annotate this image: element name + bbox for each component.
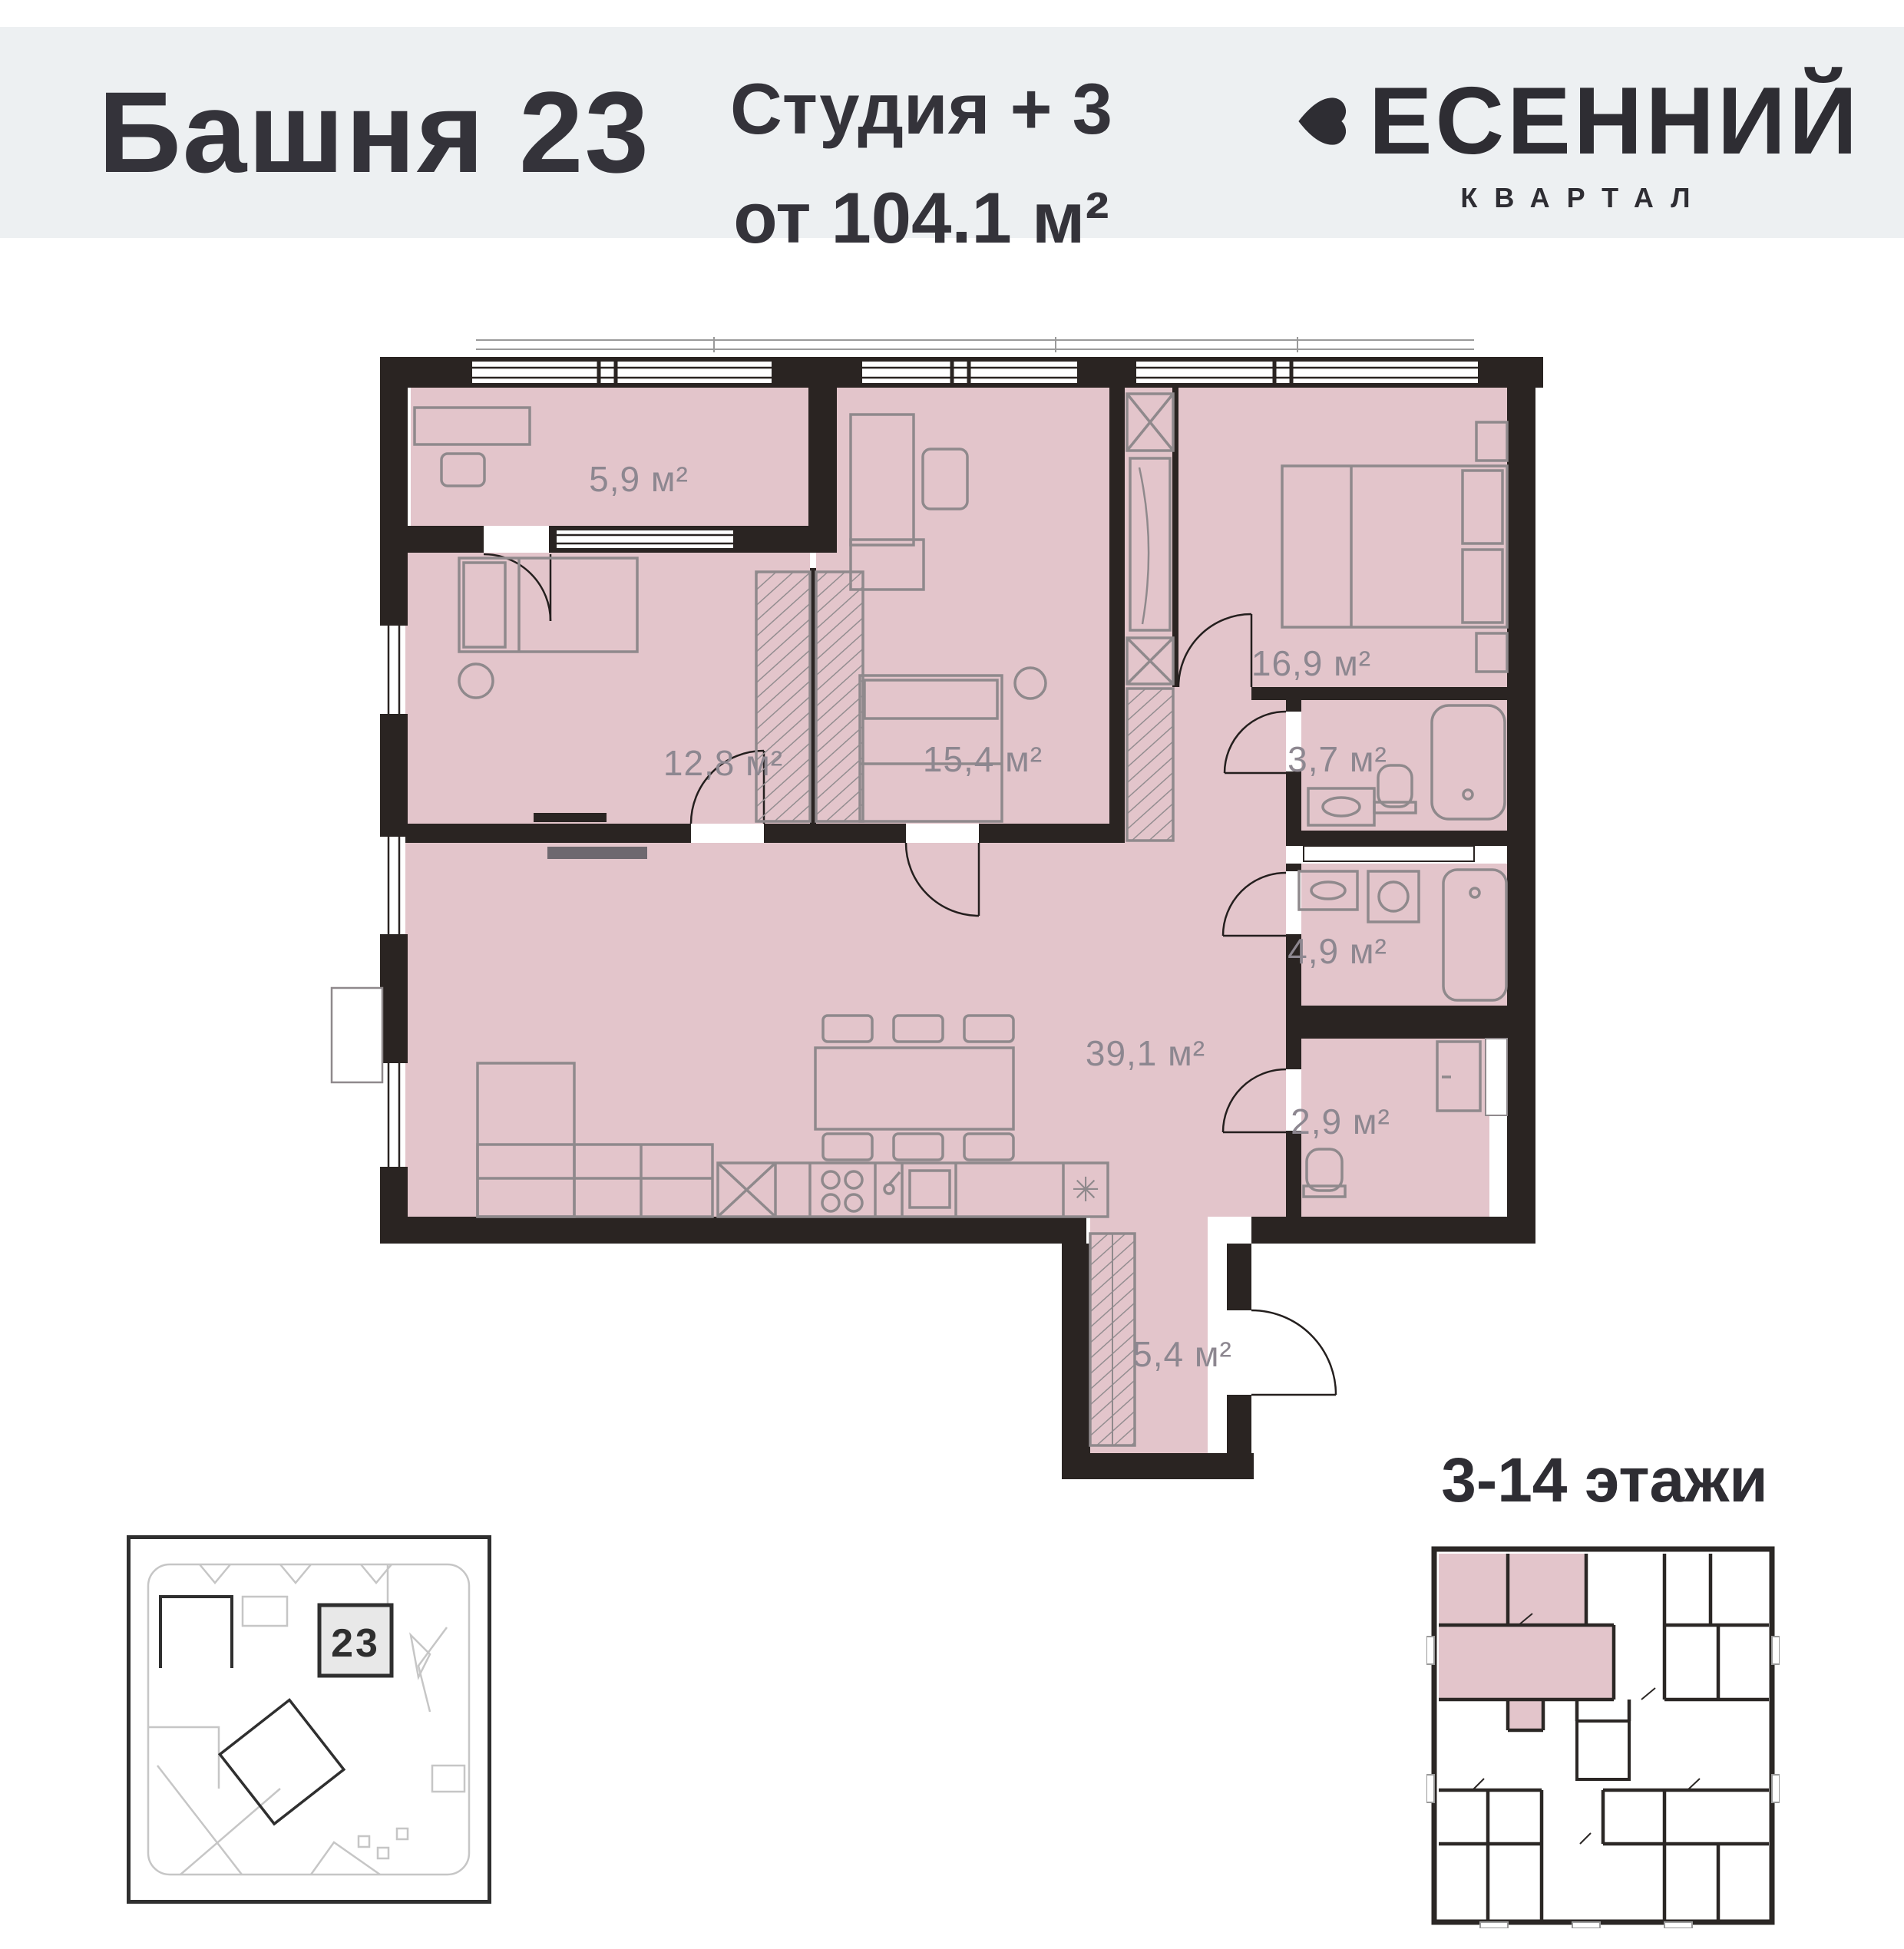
- room-label-2-9: 2,9 м²: [1291, 1102, 1390, 1141]
- floors-range-title: 3-14 этажи: [1405, 1445, 1804, 1517]
- room-label-3-7: 3,7 м²: [1288, 739, 1387, 779]
- building-floor-plan: [1426, 1537, 1780, 1928]
- building-23-label: 23: [331, 1621, 380, 1666]
- tower-title: Башня 23: [98, 27, 650, 238]
- site-plan-svg: 23: [127, 1535, 491, 1904]
- room-label-5-9: 5,9 м²: [589, 459, 689, 499]
- room-label-5-4: 5,4 м²: [1132, 1334, 1232, 1374]
- floor-plan-svg: ✳ 5,9 м² 12,8 м² 15,4 м² 16,9 м² 3,7 м² …: [369, 334, 1551, 1497]
- flyer-page: Башня 23 Студия + 3 от 104.1 м² ЕСЕННИЙ …: [0, 0, 1904, 1949]
- room-label-16-9: 16,9 м²: [1251, 643, 1371, 683]
- site-plan-map: 23: [127, 1535, 491, 1904]
- unit-area: от 104.1 м²: [722, 164, 1121, 273]
- heart-icon: [1291, 86, 1361, 157]
- unit-type: Студия + 3: [722, 55, 1121, 164]
- header-bar: Башня 23 Студия + 3 от 104.1 м² ЕСЕННИЙ …: [0, 27, 1904, 238]
- unit-summary: Студия + 3 от 104.1 м²: [722, 55, 1121, 273]
- room-label-15-4: 15,4 м²: [923, 739, 1043, 779]
- floor-plan: ✳ 5,9 м² 12,8 м² 15,4 м² 16,9 м² 3,7 м² …: [369, 334, 1551, 1497]
- brand-logo: ЕСЕННИЙ КВАРТАЛ: [1299, 67, 1852, 214]
- appliance-symbol: ✳: [1072, 1171, 1100, 1209]
- windows-left: [332, 626, 405, 1167]
- balcony-outline: [332, 988, 382, 1082]
- building-floor-plan-svg: [1426, 1537, 1780, 1928]
- room-label-4-9: 4,9 м²: [1288, 931, 1387, 971]
- room-label-12-8: 12,8 м²: [663, 743, 783, 783]
- brand-tagline: КВАРТАЛ: [1443, 182, 1707, 214]
- brand-name: ЕСЕННИЙ: [1369, 67, 1860, 176]
- room-label-39-1: 39,1 м²: [1086, 1033, 1205, 1073]
